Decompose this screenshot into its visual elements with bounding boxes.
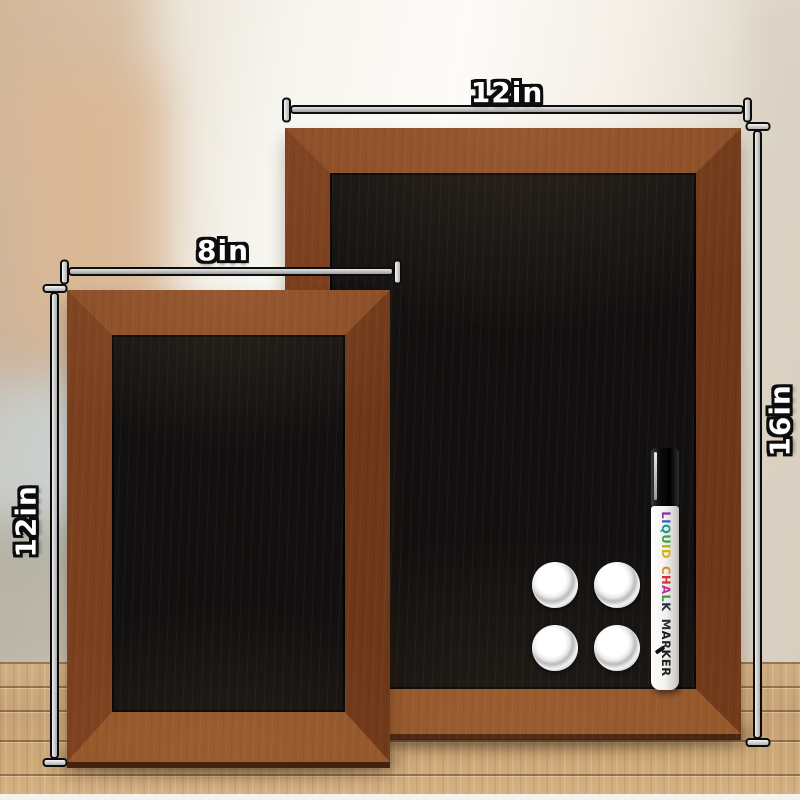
table-front-edge xyxy=(0,794,800,800)
magnet xyxy=(594,562,640,608)
marker-word: LIQUID xyxy=(659,511,671,559)
marker-cap xyxy=(651,448,679,506)
marker-word: CHALK xyxy=(659,566,671,612)
dimension-line-small-width xyxy=(68,267,394,276)
dimension-label-small-width: 8in xyxy=(123,236,323,267)
small-chalkboard xyxy=(67,290,390,762)
dimension-line-large-height xyxy=(753,130,762,739)
chalk-marker: LIQUIDCHALKMARKER xyxy=(650,448,680,690)
magnet-grid xyxy=(532,562,640,672)
dimension-label-small-height: 12in xyxy=(12,451,43,591)
wood-grain-overlay xyxy=(67,290,390,762)
dimension-label-large-height: 16in xyxy=(766,350,797,490)
dimension-line-small-height xyxy=(50,292,59,759)
magnet xyxy=(594,625,640,671)
dimension-label-large-width: 12in xyxy=(407,78,607,109)
table-plank-gap xyxy=(0,774,800,776)
magnet xyxy=(532,562,578,608)
magnet xyxy=(532,625,578,671)
